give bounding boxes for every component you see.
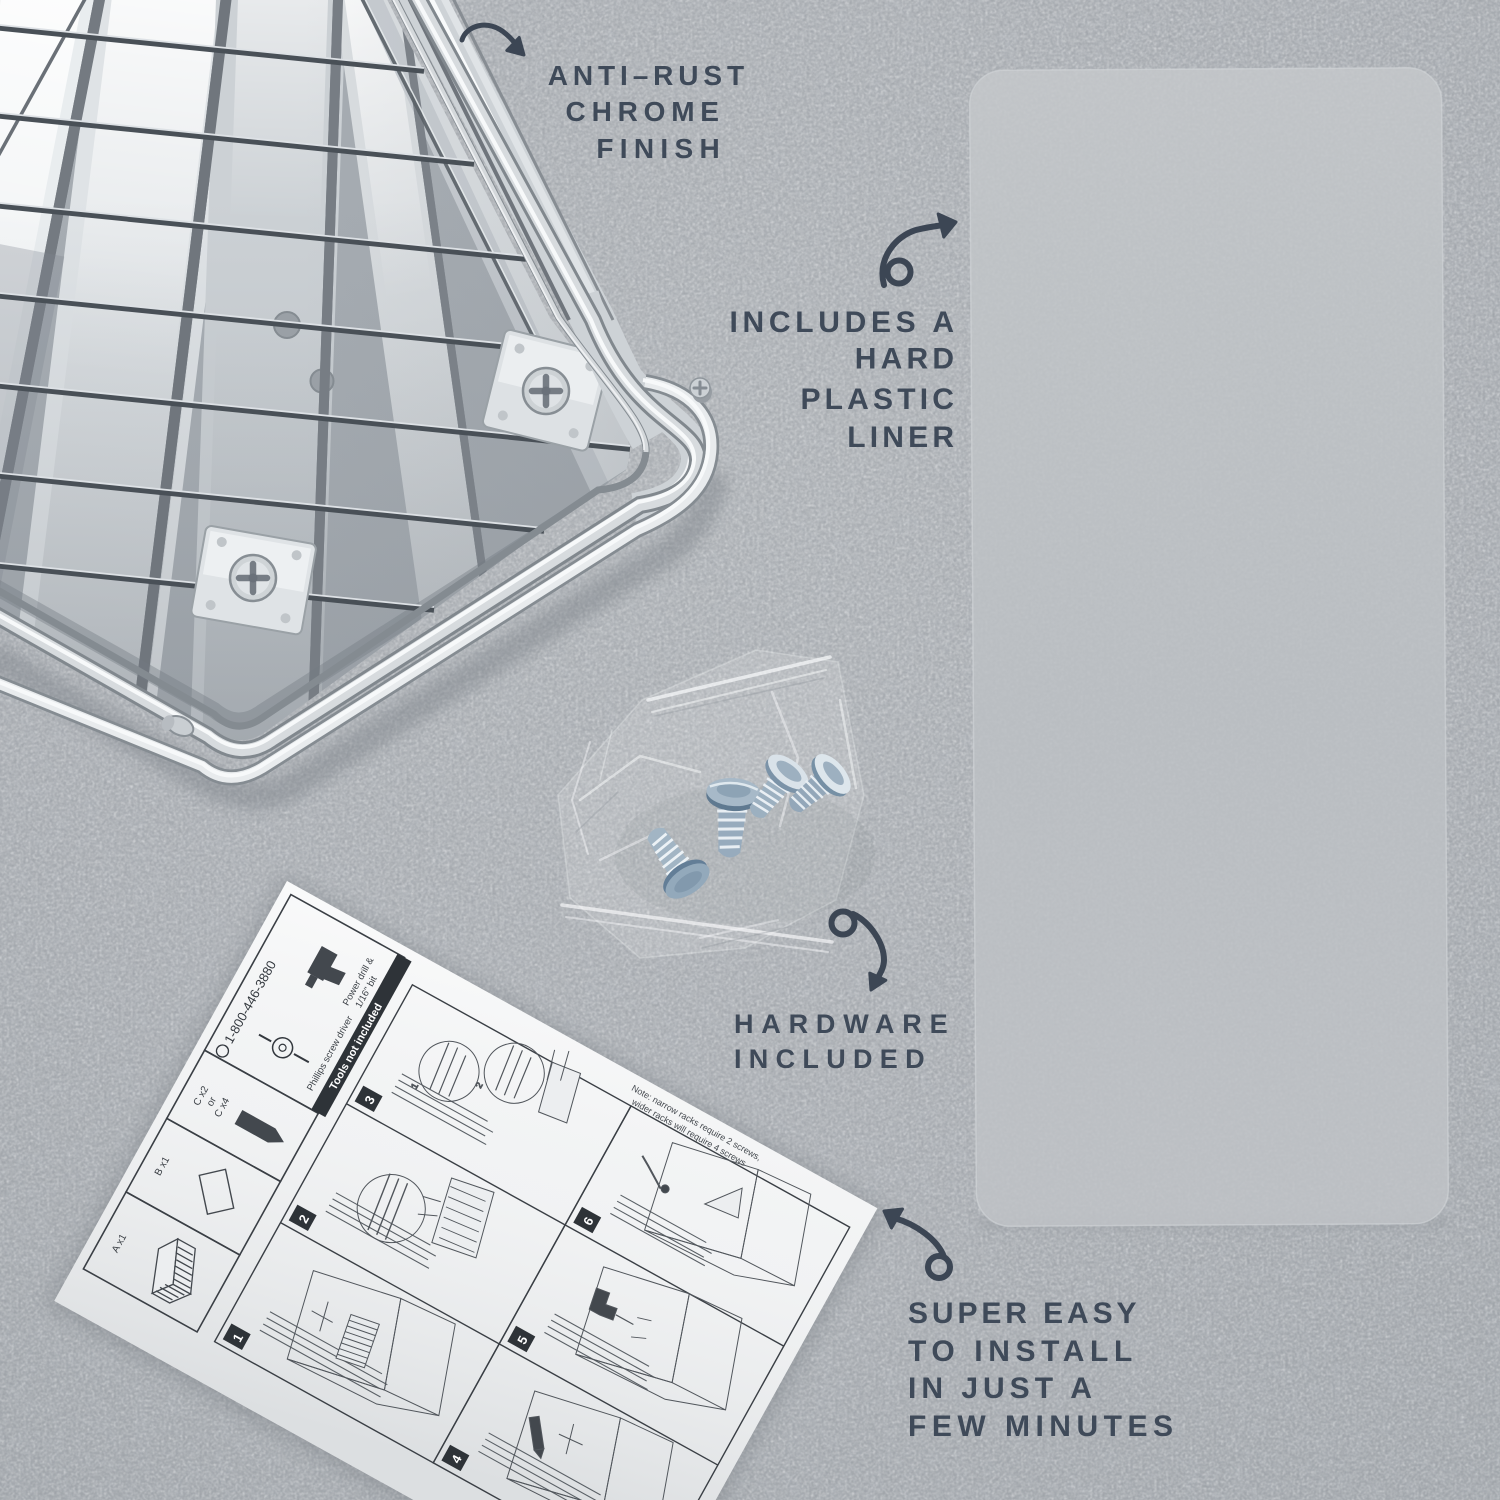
- svg-text:FINISH: FINISH: [596, 133, 726, 164]
- svg-text:HARD: HARD: [855, 343, 958, 376]
- svg-text:SUPER EASY: SUPER EASY: [908, 1297, 1140, 1330]
- svg-text:INCLUDES A: INCLUDES A: [729, 306, 958, 339]
- svg-text:HARDWARE: HARDWARE: [734, 1009, 955, 1039]
- svg-text:INCLUDED: INCLUDED: [734, 1044, 932, 1074]
- svg-text:FEW MINUTES: FEW MINUTES: [908, 1410, 1179, 1443]
- svg-text:PLASTIC: PLASTIC: [800, 383, 958, 416]
- svg-text:ANTI–RUST: ANTI–RUST: [548, 60, 749, 91]
- svg-text:LINER: LINER: [847, 421, 958, 454]
- svg-text:TO INSTALL: TO INSTALL: [908, 1335, 1138, 1368]
- svg-text:CHROME: CHROME: [566, 96, 725, 127]
- svg-text:IN JUST A: IN JUST A: [908, 1372, 1097, 1405]
